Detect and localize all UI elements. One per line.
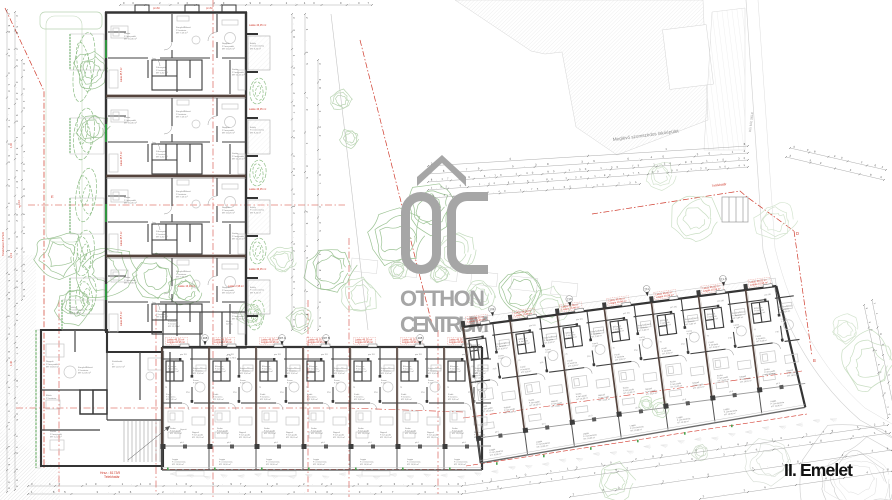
svg-text:2'10: 2'10 xyxy=(280,392,284,394)
svg-text:Telekhatár: Telekhatár xyxy=(104,475,121,479)
svg-text:E: E xyxy=(51,194,54,199)
svg-text:OTTHON: OTTHON xyxy=(400,286,485,311)
svg-text:208: 208 xyxy=(418,336,423,340)
svg-text:2'10: 2'10 xyxy=(327,392,331,394)
svg-text:Lakás 45,5 m²: Lakás 45,5 m² xyxy=(120,151,123,166)
svg-text:Lakás 45,5 m²: Lakás 45,5 m² xyxy=(120,67,123,82)
svg-text:Lakás 16,06 m²: Lakás 16,06 m² xyxy=(178,285,195,288)
svg-text:208: 208 xyxy=(203,336,208,340)
svg-text:75: 75 xyxy=(306,387,308,389)
svg-text:209: 209 xyxy=(489,307,495,312)
svg-text:Lakás 46,05 m²: Lakás 46,05 m² xyxy=(249,24,266,27)
svg-text:2'10: 2'10 xyxy=(233,392,237,394)
svg-text:75: 75 xyxy=(518,360,520,362)
svg-text:pm:60: pm:60 xyxy=(206,7,213,10)
svg-text:207 A: 207 A xyxy=(278,336,285,340)
svg-text:Loggia 10,96 m²: Loggia 10,96 m² xyxy=(261,341,279,344)
svg-text:75: 75 xyxy=(660,341,662,343)
svg-text:75: 75 xyxy=(612,348,614,350)
svg-text:pim 191: pim 191 xyxy=(274,354,281,356)
svg-text:Loggia 10,96 m²: Loggia 10,96 m² xyxy=(402,341,420,344)
svg-text:75: 75 xyxy=(212,387,214,389)
svg-text:75: 75 xyxy=(565,354,567,356)
svg-text:Lakás 46,05 m²: Lakás 46,05 m² xyxy=(249,268,266,271)
svg-text:2'10: 2'10 xyxy=(421,392,425,394)
svg-text:Lépcső: Lépcső xyxy=(180,429,187,431)
svg-text:Loggia 10,96 m²: Loggia 10,96 m² xyxy=(214,341,232,344)
svg-text:pim 191: pim 191 xyxy=(368,354,375,356)
svg-text:Lakás 45,5 m²: Lakás 45,5 m² xyxy=(120,231,123,246)
svg-text:pim 191: pim 191 xyxy=(180,354,187,356)
svg-text:II. Emelet: II. Emelet xyxy=(784,460,853,480)
svg-text:Lakás 2,98 m²: Lakás 2,98 m² xyxy=(228,285,244,288)
svg-text:75: 75 xyxy=(400,387,402,389)
svg-text:B: B xyxy=(813,358,816,363)
svg-text:207 B: 207 B xyxy=(322,336,330,340)
svg-text:pim 191: pim 191 xyxy=(415,354,422,356)
svg-text:75: 75 xyxy=(165,387,167,389)
svg-text:211: 211 xyxy=(644,287,649,292)
svg-text:pm:60: pm:60 xyxy=(153,7,160,10)
svg-text:pim 191: pim 191 xyxy=(321,354,328,356)
svg-text:Lakás 46,05 m²: Lakás 46,05 m² xyxy=(249,188,266,191)
svg-text:210: 210 xyxy=(567,297,573,302)
svg-text:Lakás 45,5 m²: Lakás 45,5 m² xyxy=(120,311,123,326)
svg-text:D: D xyxy=(796,231,799,236)
svg-text:75: 75 xyxy=(471,366,473,368)
svg-text:75: 75 xyxy=(447,387,449,389)
svg-text:2'10: 2'10 xyxy=(186,392,190,394)
svg-text:75: 75 xyxy=(259,387,261,389)
svg-text:Loggia 10,96 m²: Loggia 10,96 m² xyxy=(167,341,185,344)
svg-text:Lakás 46,05 m²: Lakás 46,05 m² xyxy=(249,108,266,111)
svg-text:Telekhatár 8173/9: Telekhatár 8173/9 xyxy=(1,232,5,256)
svg-text:2'10: 2'10 xyxy=(374,392,378,394)
svg-text:Loggia 10,96 m²: Loggia 10,96 m² xyxy=(308,341,326,344)
svg-text:75: 75 xyxy=(707,335,709,337)
svg-text:75: 75 xyxy=(353,387,355,389)
svg-text:75: 75 xyxy=(754,329,756,331)
svg-text:pim 191: pim 191 xyxy=(227,354,234,356)
svg-text:Loggia 10,96 m²: Loggia 10,96 m² xyxy=(355,341,373,344)
